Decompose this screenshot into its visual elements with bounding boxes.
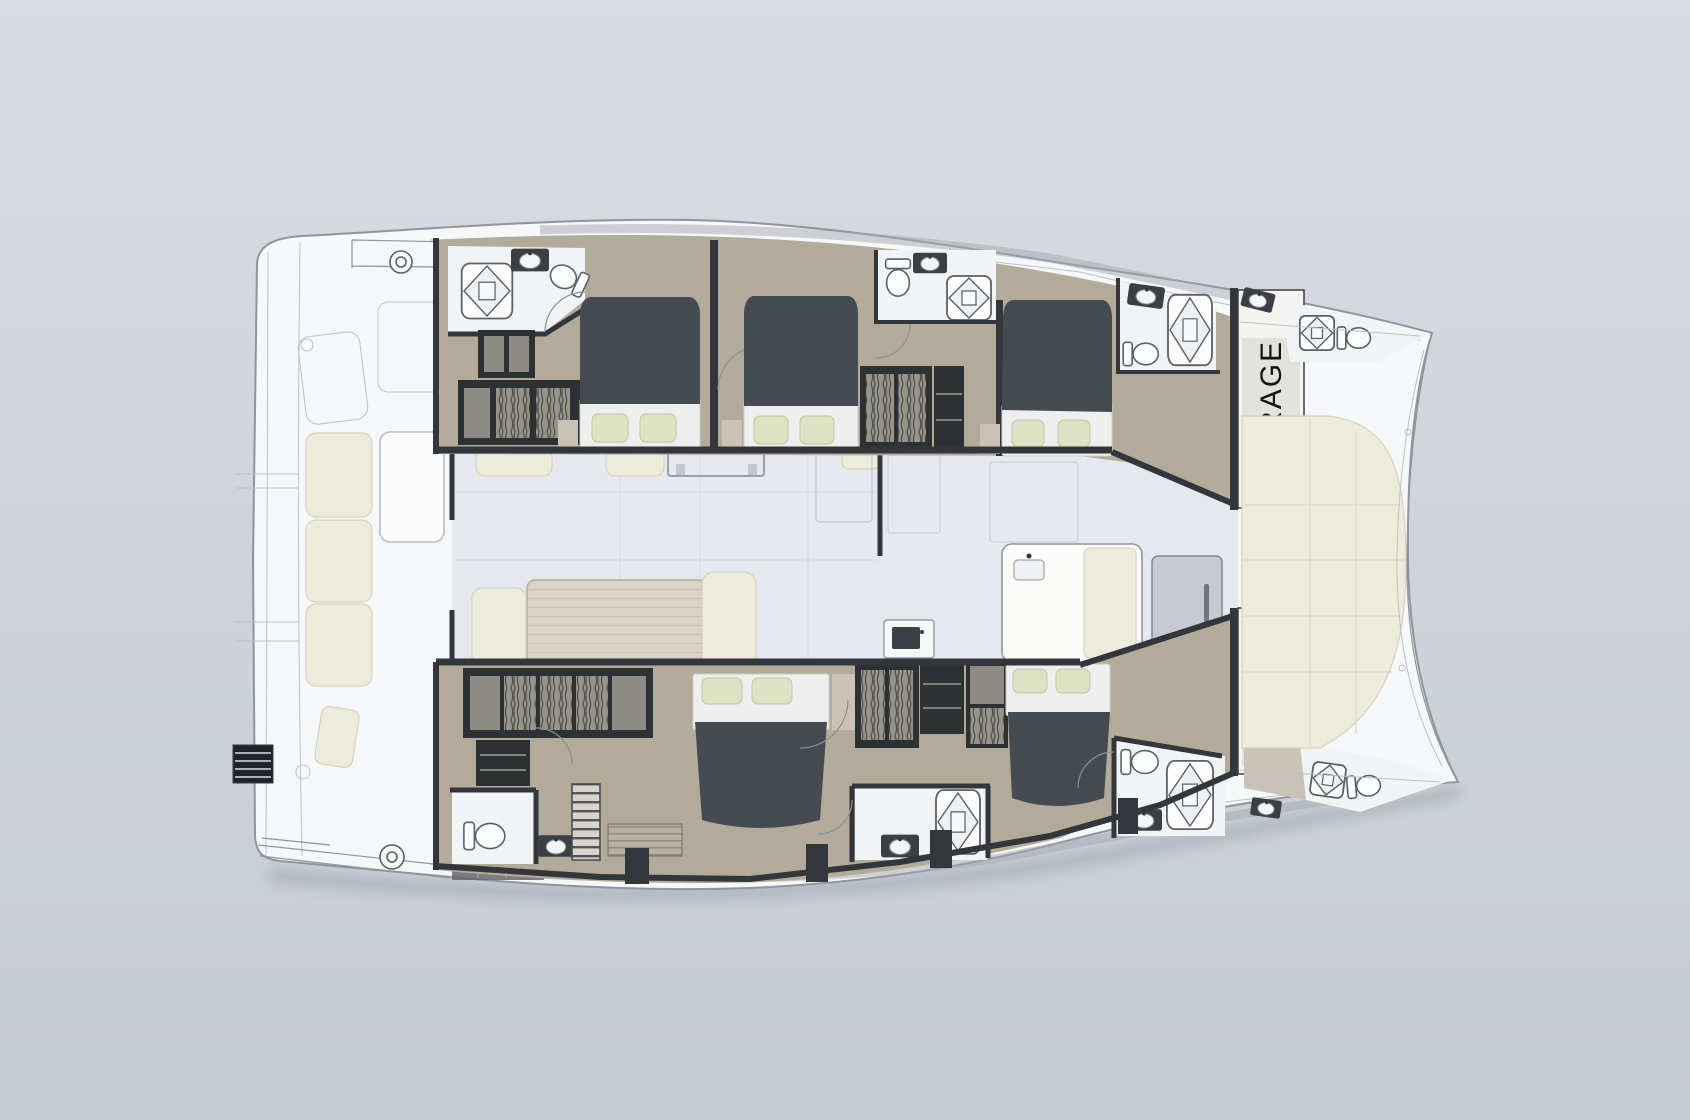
double-bed-port-fwd xyxy=(1006,664,1110,806)
catamaran-floor-plan: STORAGE xyxy=(0,0,1690,1120)
wall-stub xyxy=(806,844,828,882)
wall-stub xyxy=(1118,798,1138,834)
wall-stub xyxy=(930,830,952,868)
sink-port-aft xyxy=(538,835,574,857)
cabin-wall xyxy=(710,240,718,452)
pillow xyxy=(752,678,792,704)
sofa-right xyxy=(702,572,756,668)
pillow xyxy=(754,416,788,444)
nightstand xyxy=(558,420,578,450)
nightstand xyxy=(722,420,742,450)
bed-duvet xyxy=(580,297,700,404)
bed-duvet xyxy=(1002,300,1112,412)
wardrobe xyxy=(860,366,964,450)
bed-duvet xyxy=(695,722,827,828)
pillow xyxy=(1058,420,1090,447)
pillow xyxy=(1056,669,1090,693)
storage-wall xyxy=(1230,288,1238,510)
stairs-port xyxy=(572,784,600,860)
pillow xyxy=(1012,420,1044,447)
bed-duvet xyxy=(744,296,858,406)
pillow xyxy=(592,414,628,442)
galley-island xyxy=(1002,544,1142,662)
wall-stub xyxy=(625,848,649,884)
pillow xyxy=(1013,669,1047,693)
sofa-left xyxy=(472,588,526,666)
galley-sink-unit xyxy=(884,620,934,658)
pillow xyxy=(800,416,834,444)
storage-wall xyxy=(1230,608,1238,776)
dining-table xyxy=(527,580,707,668)
pillow xyxy=(702,678,742,704)
pillow xyxy=(640,414,676,442)
bed-duvet xyxy=(1008,712,1110,806)
